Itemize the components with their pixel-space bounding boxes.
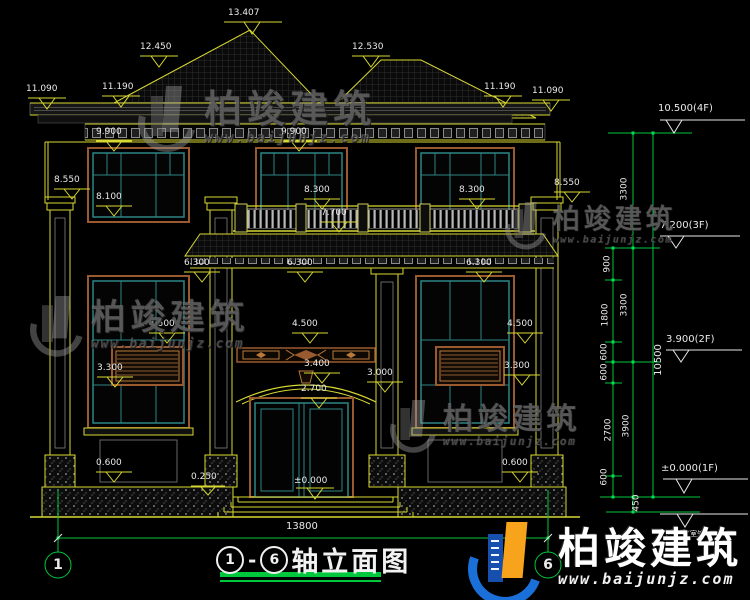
elevation-cap-left: 8.550 [54,176,80,185]
brand-url: www.baijunjz.com [558,570,742,588]
dim-450: 450 [633,494,642,511]
drawing-title: 1 - 6 轴立面图 [216,540,411,579]
elevation-plinth-left: 0.600 [96,459,122,468]
dim-story-bottom: 3900 [623,415,632,438]
elevation-canopy-left: 6.300 [184,259,210,268]
title-text: 轴立面图 [291,540,411,579]
elevation-win-top-right: 4.500 [507,320,533,329]
elevation-rail-right: 8.300 [459,186,485,195]
dim-600-a: 600 [601,343,610,360]
elevation-roof-peak: 13.407 [228,9,260,18]
dim-2700: 2700 [605,419,614,442]
dim-story-top: 3300 [621,178,630,201]
level-2f: 3.900(2F) [666,335,715,345]
elevation-balcony: 7.700 [321,209,347,218]
elevation-step: 0.250 [191,473,217,482]
elevation-ground: ±0.000 [294,477,327,486]
eave-cornice [30,103,550,123]
elevation-sill-right: 3.300 [504,362,530,371]
elevation-plinth-right: 0.600 [502,459,528,468]
dim-total-width: 13800 [286,522,318,532]
elevation-eave-left: 11.190 [102,83,134,92]
dim-600-c: 600 [601,468,610,485]
elevation-door: 2.700 [301,385,327,394]
brand-name: 柏竣建筑 [558,528,742,570]
dim-900: 900 [604,255,613,272]
elevation-rail-left: 8.300 [304,186,330,195]
elevation-arch: 3.400 [304,360,330,369]
title-axis-start: 1 [216,546,244,574]
level-3f: 7.200(3F) [660,221,709,231]
level-4f: 10.500(4F) [658,104,713,114]
elevation-eave-far-right: 11.090 [532,87,564,96]
elevation-sill-2f-left: 8.100 [96,193,122,202]
elevation-sill-left: 3.300 [97,364,123,373]
elevation-cornice-mid: 9.900 [281,128,307,137]
elevation-win-top-mid: 4.500 [292,320,318,329]
elevation-eave-right: 11.190 [484,83,516,92]
brand-logo-icon [466,520,550,596]
dim-total-height: 10500 [654,344,664,376]
dim-story-mid: 3300 [621,294,630,317]
elevation-cornice-left: 9.900 [96,128,122,137]
elevation-porch: 3.000 [367,369,393,378]
dim-600-b: 600 [601,363,610,380]
elevation-roof-left: 12.450 [140,43,172,52]
elevation-canopy-mid: 6.300 [287,259,313,268]
brand-logo: 柏竣建筑 www.baijunjz.com [466,520,742,596]
cad-elevation-sheet: 13.407 12.450 12.530 11.090 11.190 11.19… [0,0,750,600]
elevation-canopy-right: 6.300 [466,259,492,268]
elevation-roof-right: 12.530 [352,43,384,52]
entrance [236,348,376,497]
canopy-roof [185,234,558,268]
elevation-cap-right: 8.550 [554,179,580,188]
axis-bubble-1: 1 [53,557,63,573]
title-axis-end: 6 [260,546,288,574]
elevation-win-top-left: 4.500 [149,320,175,329]
level-1f: ±0.000(1F) [661,464,718,474]
elevation-eave-far-left: 11.090 [26,85,58,94]
dim-1800: 1800 [602,304,611,327]
title-dash: - [248,548,256,572]
